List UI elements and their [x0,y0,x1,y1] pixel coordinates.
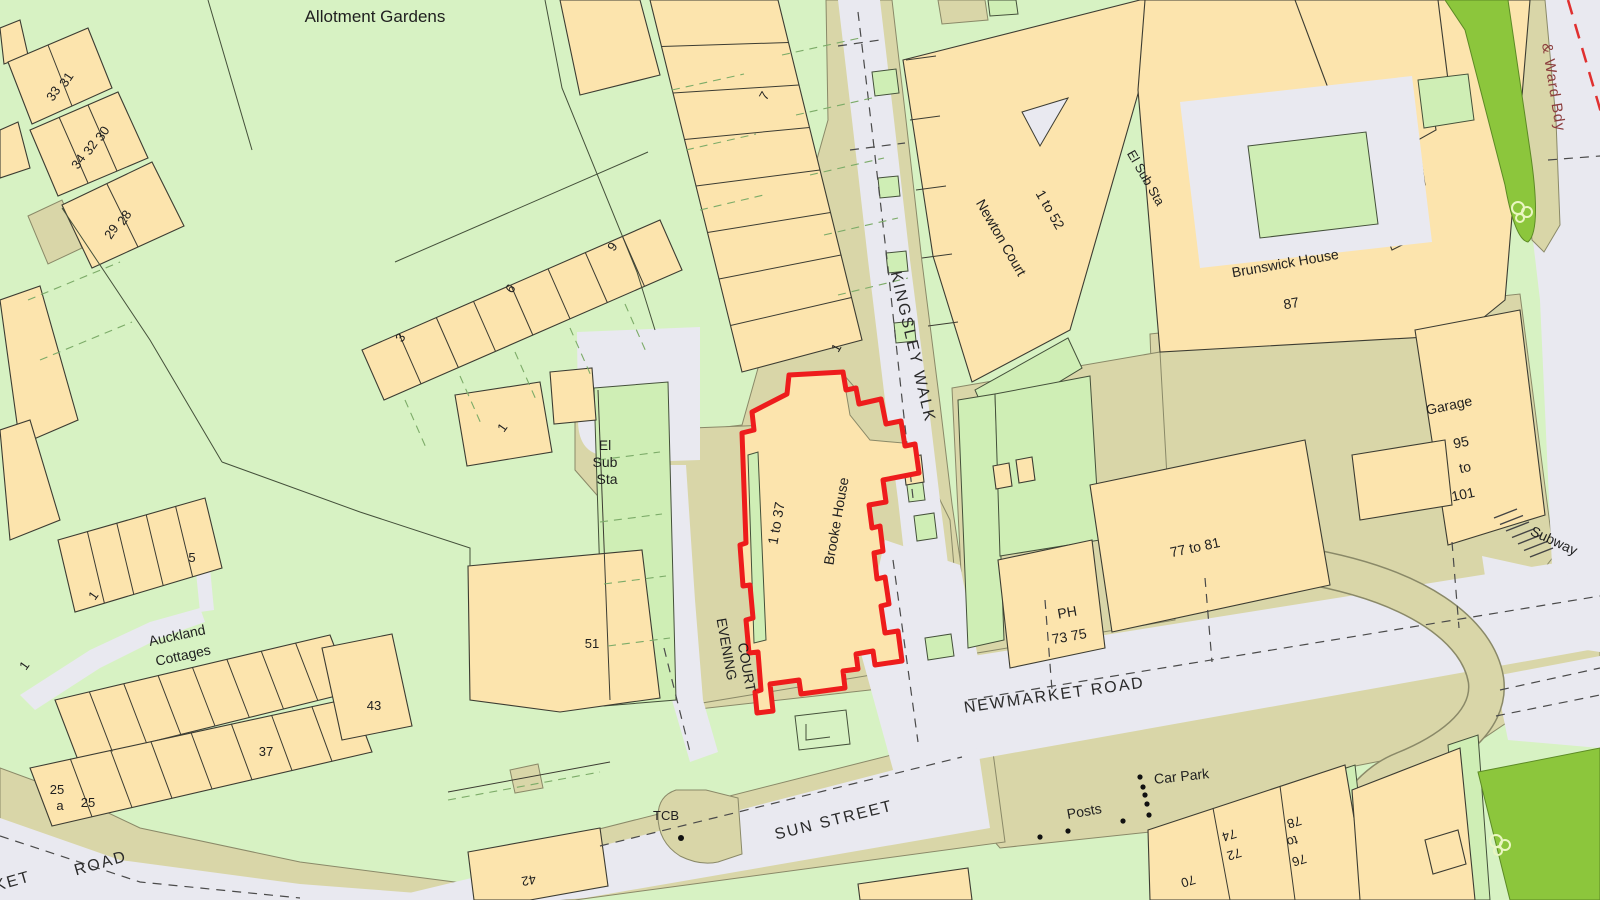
label-5: 5 [188,550,195,565]
map-canvas: Allotment Gardens & Ward Bdy KINGSLEY WA… [0,0,1600,900]
shed-ph-1 [993,463,1012,489]
label-allotment-gardens: Allotment Gardens [305,7,446,26]
site-plan-map: Allotment Gardens & Ward Bdy KINGSLEY WA… [0,0,1600,900]
tcb-dot [678,835,684,841]
label-51: 51 [585,636,599,651]
green-sq-kw3 [886,251,908,273]
bldg-51 [468,550,660,712]
top-right-strip [938,0,988,24]
label-sub: Sub [593,454,618,470]
label-25: 25 [81,795,95,810]
el-sub-sta-west-bldg [550,368,596,424]
label-25a-letter: a [56,798,64,813]
bldg-ph [998,540,1105,668]
label-37: 37 [259,744,273,759]
green-sq-e2 [914,513,937,541]
green-sq-e3 [925,634,954,660]
courtyard-green [1248,132,1378,238]
brunswick-green-e [1418,74,1474,128]
green-sq-top [988,0,1018,16]
label-tcb: TCB [653,808,679,823]
label-87: 87 [1282,294,1300,312]
green-plot-ph-north [995,376,1100,556]
label-25a-num: 25 [50,782,64,797]
green-sq-kw2 [878,176,900,198]
label-42: 42 [520,872,537,889]
green-sq-kw1 [872,69,899,96]
label-43: 43 [367,698,381,713]
label-el: El [599,437,611,453]
label-ph: PH [1056,603,1078,622]
label-sta: Sta [596,471,617,487]
shed-ph-2 [1016,457,1035,483]
